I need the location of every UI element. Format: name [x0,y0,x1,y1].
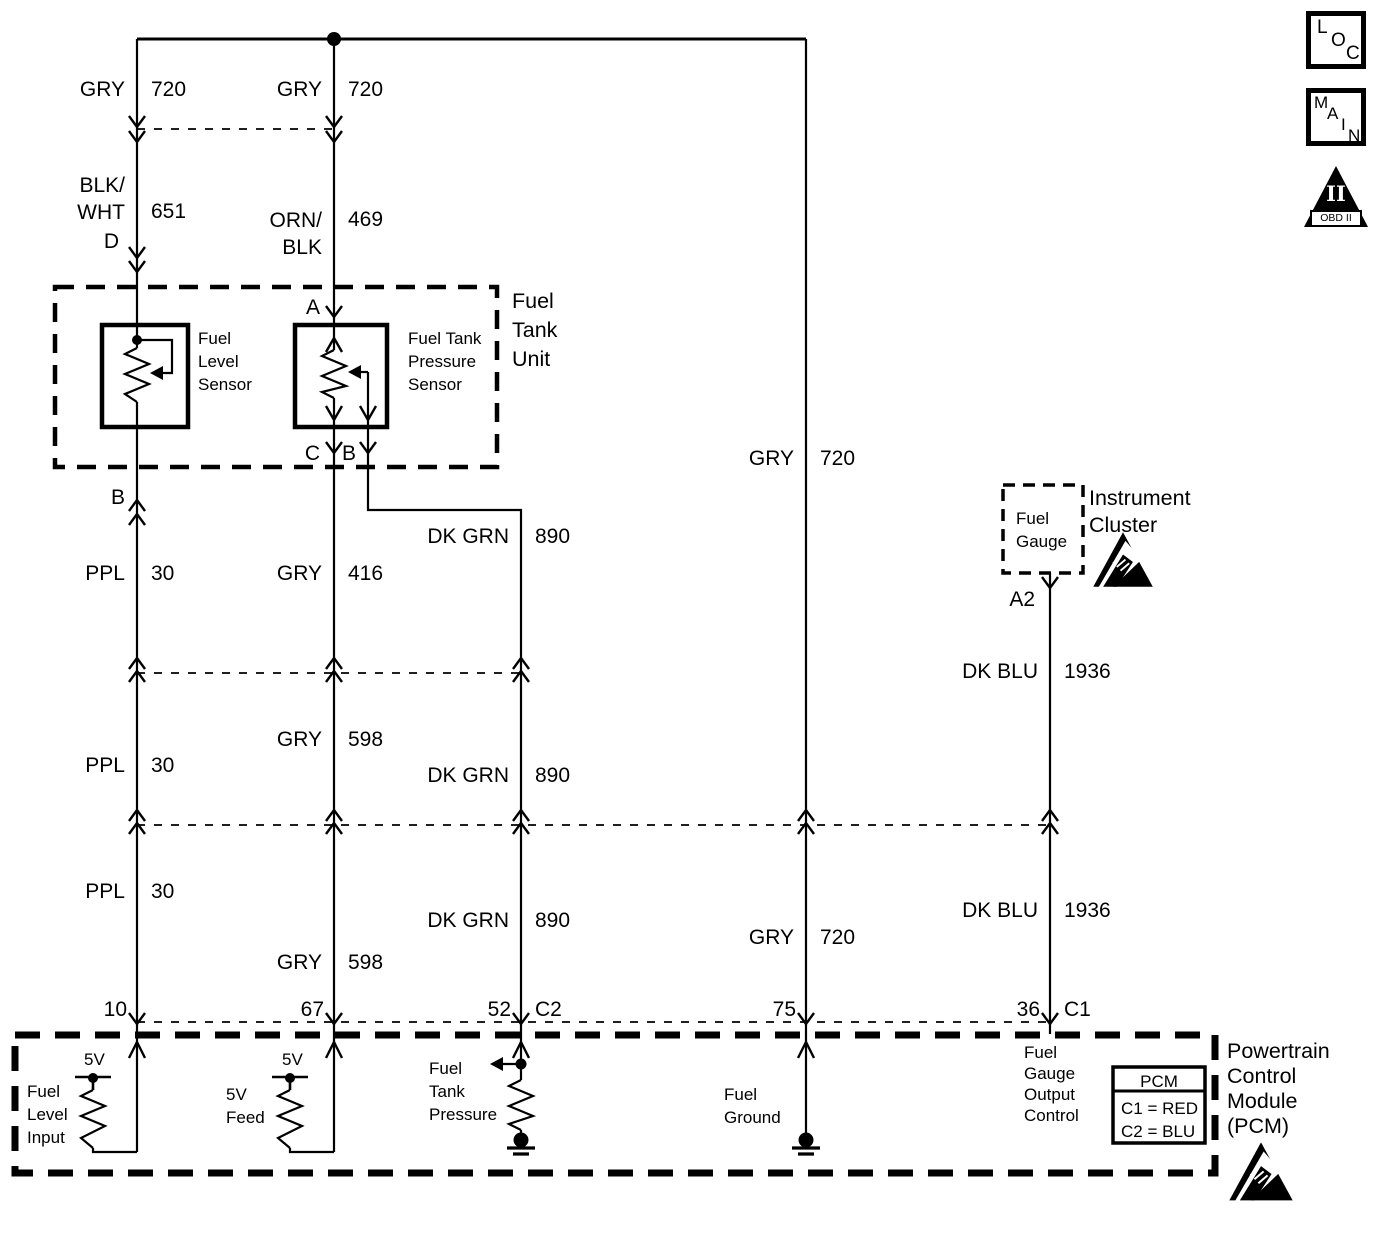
wire-color: GRY [686,925,794,951]
fuel-tank-unit-label: Fuel Tank Unit [512,287,557,374]
wires [75,39,1050,1152]
pin-label-a: A [240,295,320,321]
main-badge[interactable]: M A I N [1306,88,1366,146]
wire-color: PPL [17,879,125,905]
wire-circuit: 469 [348,207,383,233]
wire-color: GRY [214,561,322,587]
wire-color: DK GRN [401,908,509,934]
wire-circuit: 720 [151,77,186,103]
wire-color: BLK/ WHT [17,172,125,226]
pcm-fuel-gauge-output-label: Fuel Gauge Output Control [1024,1042,1079,1126]
pcm-5v-label: 5V [282,1048,303,1071]
wire-color: ORN/ BLK [214,207,322,261]
wire-circuit: 416 [348,561,383,587]
fuel-tank-pressure-sensor-resistor [322,350,346,398]
wire-color: DK BLU [930,659,1038,685]
pcm-pin-36: 36 [960,997,1040,1023]
wire-circuit: 890 [535,763,570,789]
pcm-label: Powertrain Control Module (PCM) [1227,1039,1330,1139]
obd-ii-numeral: II [1326,182,1346,206]
component-boxes [15,287,1215,1173]
wire-color: DK GRN [401,763,509,789]
fuel-tank-pressure-sensor-label: Fuel Tank Pressure Sensor [408,327,481,396]
wiring-diagram-page: L O C M A I N II OBD II GRY 720 GRY 720 … [0,0,1376,1245]
wire-circuit: 30 [151,879,174,905]
pin-label-b-level: B [45,485,125,511]
pin-label-a2: A2 [955,587,1035,613]
pcm-fuel-level-resistor [81,1090,105,1148]
ground-symbol [507,1148,535,1154]
loc-letter: L [1317,17,1328,39]
wire-circuit: 720 [820,925,855,951]
pcm-fuel-tank-pressure-resistor [509,1080,533,1130]
loc-letter: C [1346,43,1360,65]
wire-color: GRY [214,727,322,753]
fuel-level-sensor-resistor [125,348,149,402]
pcm-pin-67: 67 [244,997,324,1023]
pcm-legend-c1: C1 = RED [1121,1097,1198,1120]
main-letter: A [1327,104,1338,124]
instrument-cluster-label: Instrument Cluster [1089,485,1191,539]
wire-circuit: 598 [348,727,383,753]
wire-circuit: 720 [348,77,383,103]
wire-color: PPL [17,753,125,779]
wire-circuit: 1936 [1064,898,1111,924]
wire-color: DK GRN [401,524,509,550]
wire-color: GRY [686,446,794,472]
wire-circuit: 651 [151,199,186,225]
pcm-connector-c2: C2 [535,997,562,1023]
pcm-5v-feed-label: 5V Feed [226,1083,265,1129]
main-letter: N [1348,126,1360,146]
pcm-pin-52: 52 [431,997,511,1023]
ground-symbols [507,1148,820,1154]
esd-warning-icon [1229,1142,1292,1201]
wire-circuit: 598 [348,950,383,976]
pcm-5v-label: 5V [84,1048,105,1071]
wire-circuit: 890 [535,908,570,934]
fuel-gauge-label: Fuel Gauge [1016,507,1067,553]
pin-label-d: D [39,229,119,255]
main-letter: I [1341,115,1346,135]
pcm-fuel-tank-pressure-label: Fuel Tank Pressure [429,1057,497,1126]
pcm-fuel-level-input-label: Fuel Level Input [27,1080,68,1149]
pcm-legend-title: PCM [1113,1070,1205,1093]
wiring-diagram-canvas [0,0,1376,1245]
loc-letter: O [1331,30,1346,52]
pcm-pin-10: 10 [47,997,127,1023]
pcm-connector-c1: C1 [1064,997,1091,1023]
wire-color: GRY [214,950,322,976]
obd-ii-label: OBD II [1311,211,1361,226]
wire-color: PPL [17,561,125,587]
wire-color: GRY [17,77,125,103]
wire-circuit: 890 [535,524,570,550]
esd-warning-icon [1093,532,1153,588]
loc-badge[interactable]: L O C [1306,11,1366,69]
wire-circuit: 30 [151,561,174,587]
wire-color: DK BLU [930,898,1038,924]
wire-circuit: 30 [151,753,174,779]
pcm-pin-75: 75 [716,997,796,1023]
wire-color: GRY [214,77,322,103]
wire-circuit: 1936 [1064,659,1111,685]
fuel-level-sensor-label: Fuel Level Sensor [198,327,252,396]
pin-label-b-pressure: B [276,441,356,467]
junction-dots [88,32,814,1148]
ground-symbol [792,1148,820,1154]
pcm-5v-feed-resistor [278,1090,302,1148]
pcm-fuel-ground-label: Fuel Ground [724,1083,781,1129]
wire-circuit: 720 [820,446,855,472]
pcm-legend-c2: C2 = BLU [1121,1120,1195,1143]
wiper-arrowheads [150,365,503,1071]
